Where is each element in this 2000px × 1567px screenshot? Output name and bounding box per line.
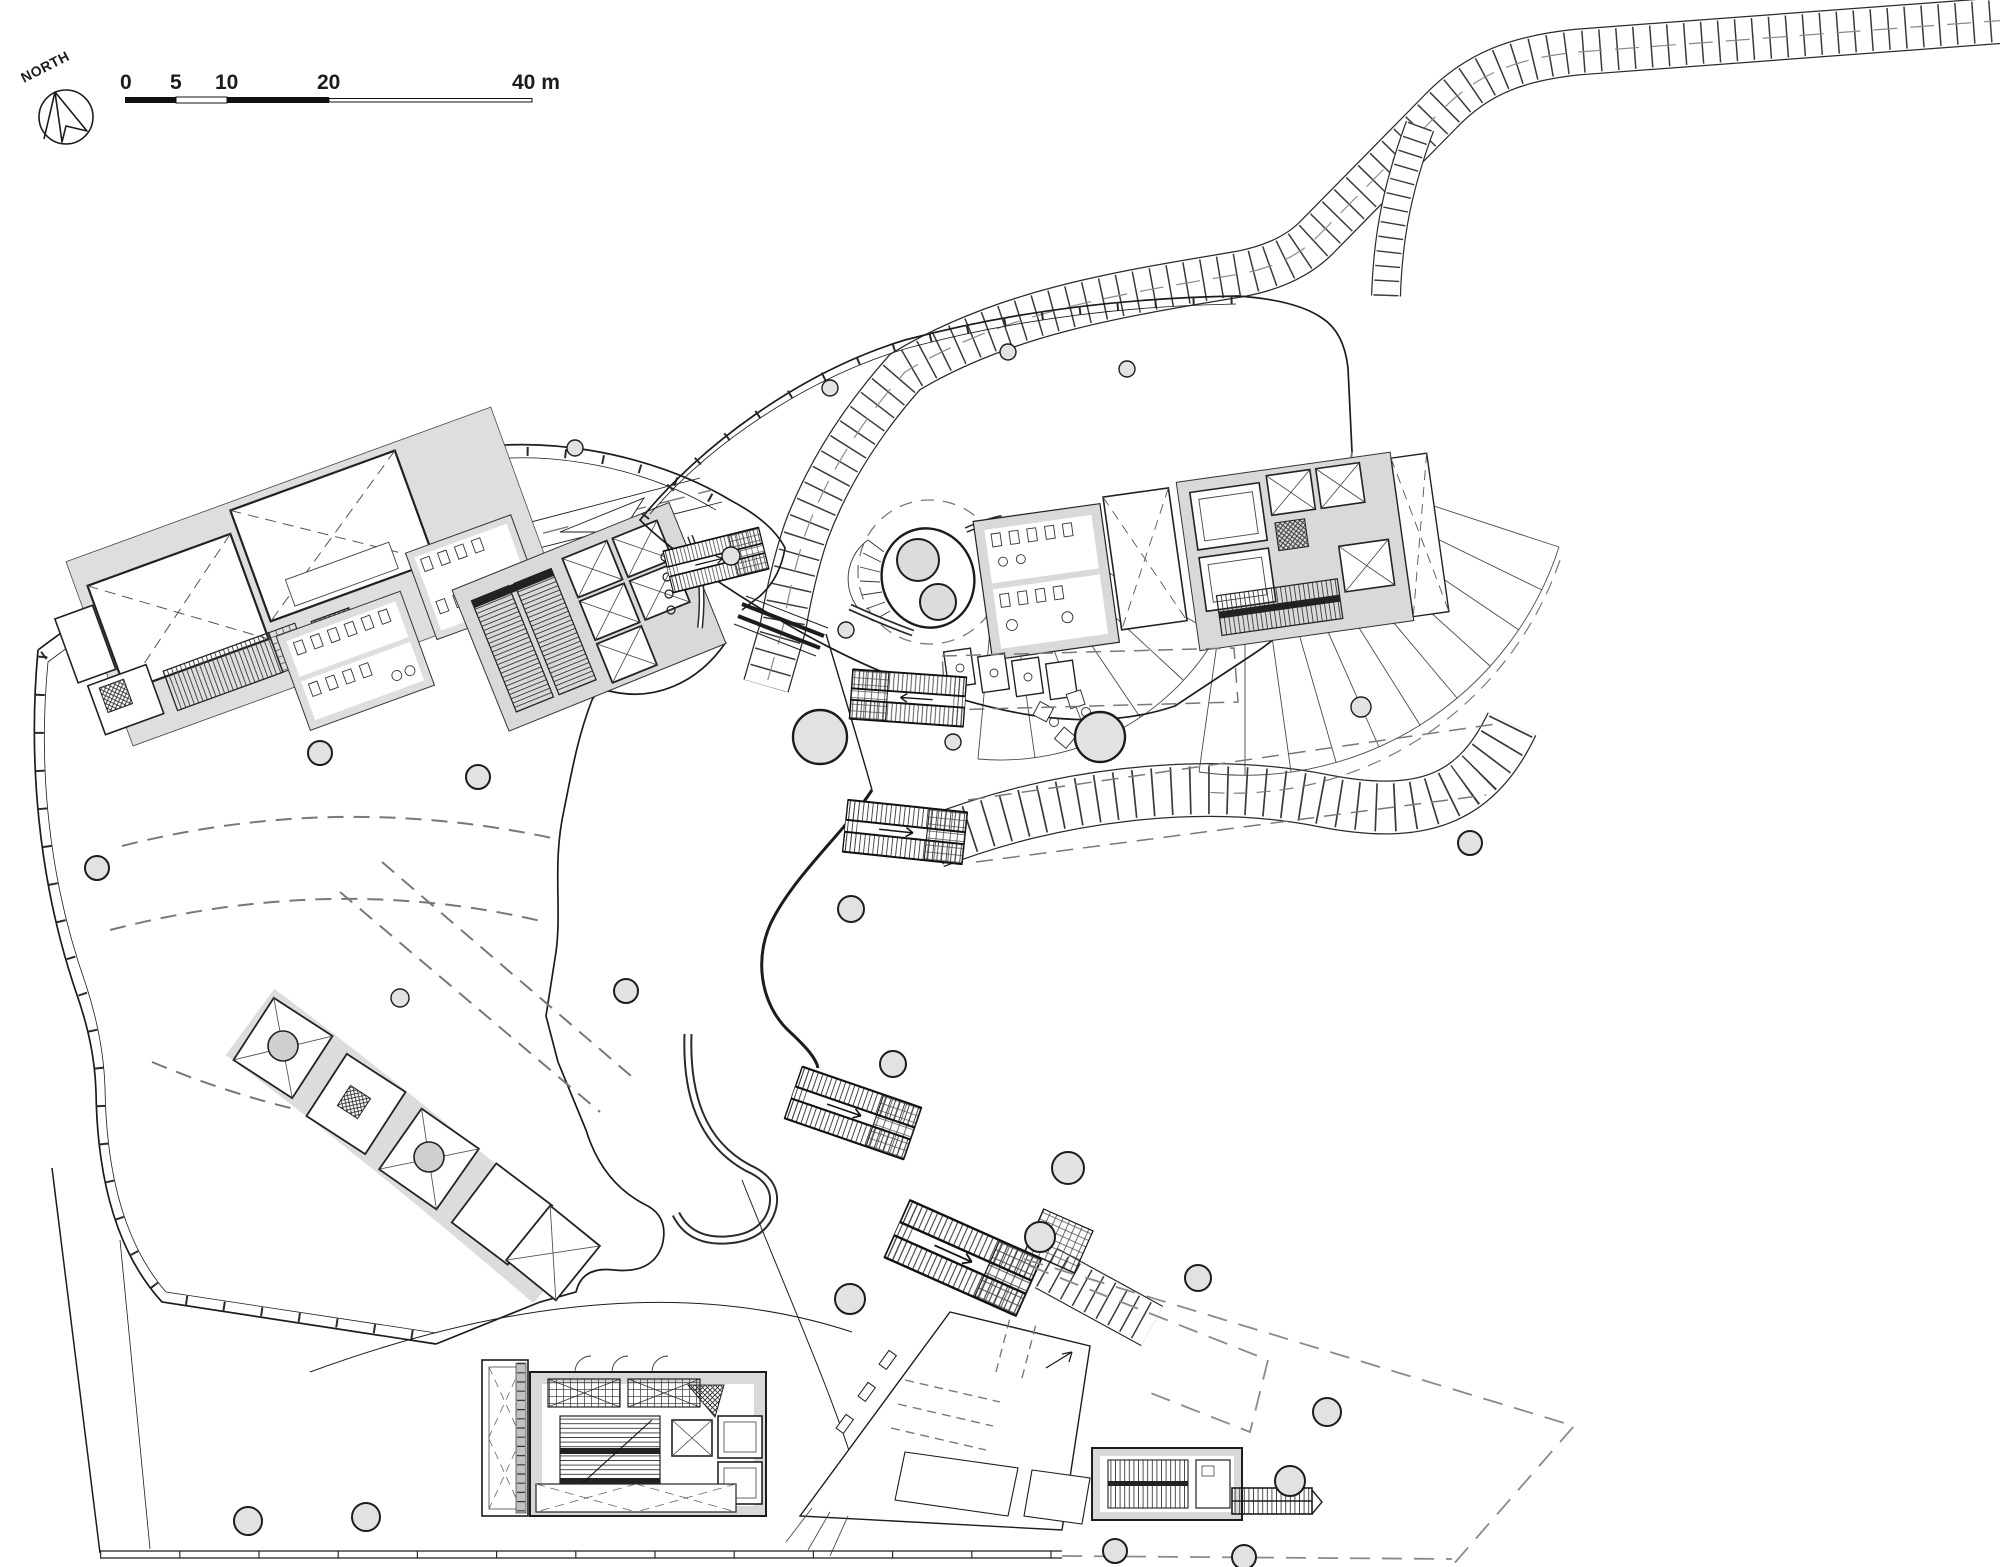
escalator-3 <box>843 800 968 864</box>
escalator-4 <box>785 1067 922 1160</box>
right-toilets <box>972 488 1188 660</box>
escalator-5 <box>885 1200 1042 1316</box>
floor-plan-sheet: NORTH 0 5 10 20 40 m <box>0 0 2000 1567</box>
entrance-hall <box>786 1312 1090 1556</box>
scale-tick-0: 0 <box>120 71 132 94</box>
plaza-walls <box>310 634 872 1460</box>
north-arrow-icon: NORTH <box>18 48 93 144</box>
scale-tick-40: 40 m <box>512 71 560 94</box>
scale-tick-5: 5 <box>170 71 182 94</box>
right-core <box>1176 447 1449 650</box>
scale-tick-20: 20 <box>317 71 340 94</box>
left-edge-rooms <box>233 998 599 1300</box>
bottom-core-building <box>482 1356 766 1516</box>
escalator-2 <box>849 669 966 726</box>
walkway-band-lower-link <box>1046 1268 1152 1326</box>
north-label: NORTH <box>18 48 72 86</box>
scale-bar: 0 5 10 20 40 m <box>120 71 560 103</box>
floor-plan-canvas: NORTH 0 5 10 20 40 m <box>0 0 2000 1567</box>
walkway-band-bottom <box>934 724 1512 842</box>
scale-tick-10: 10 <box>215 71 238 94</box>
